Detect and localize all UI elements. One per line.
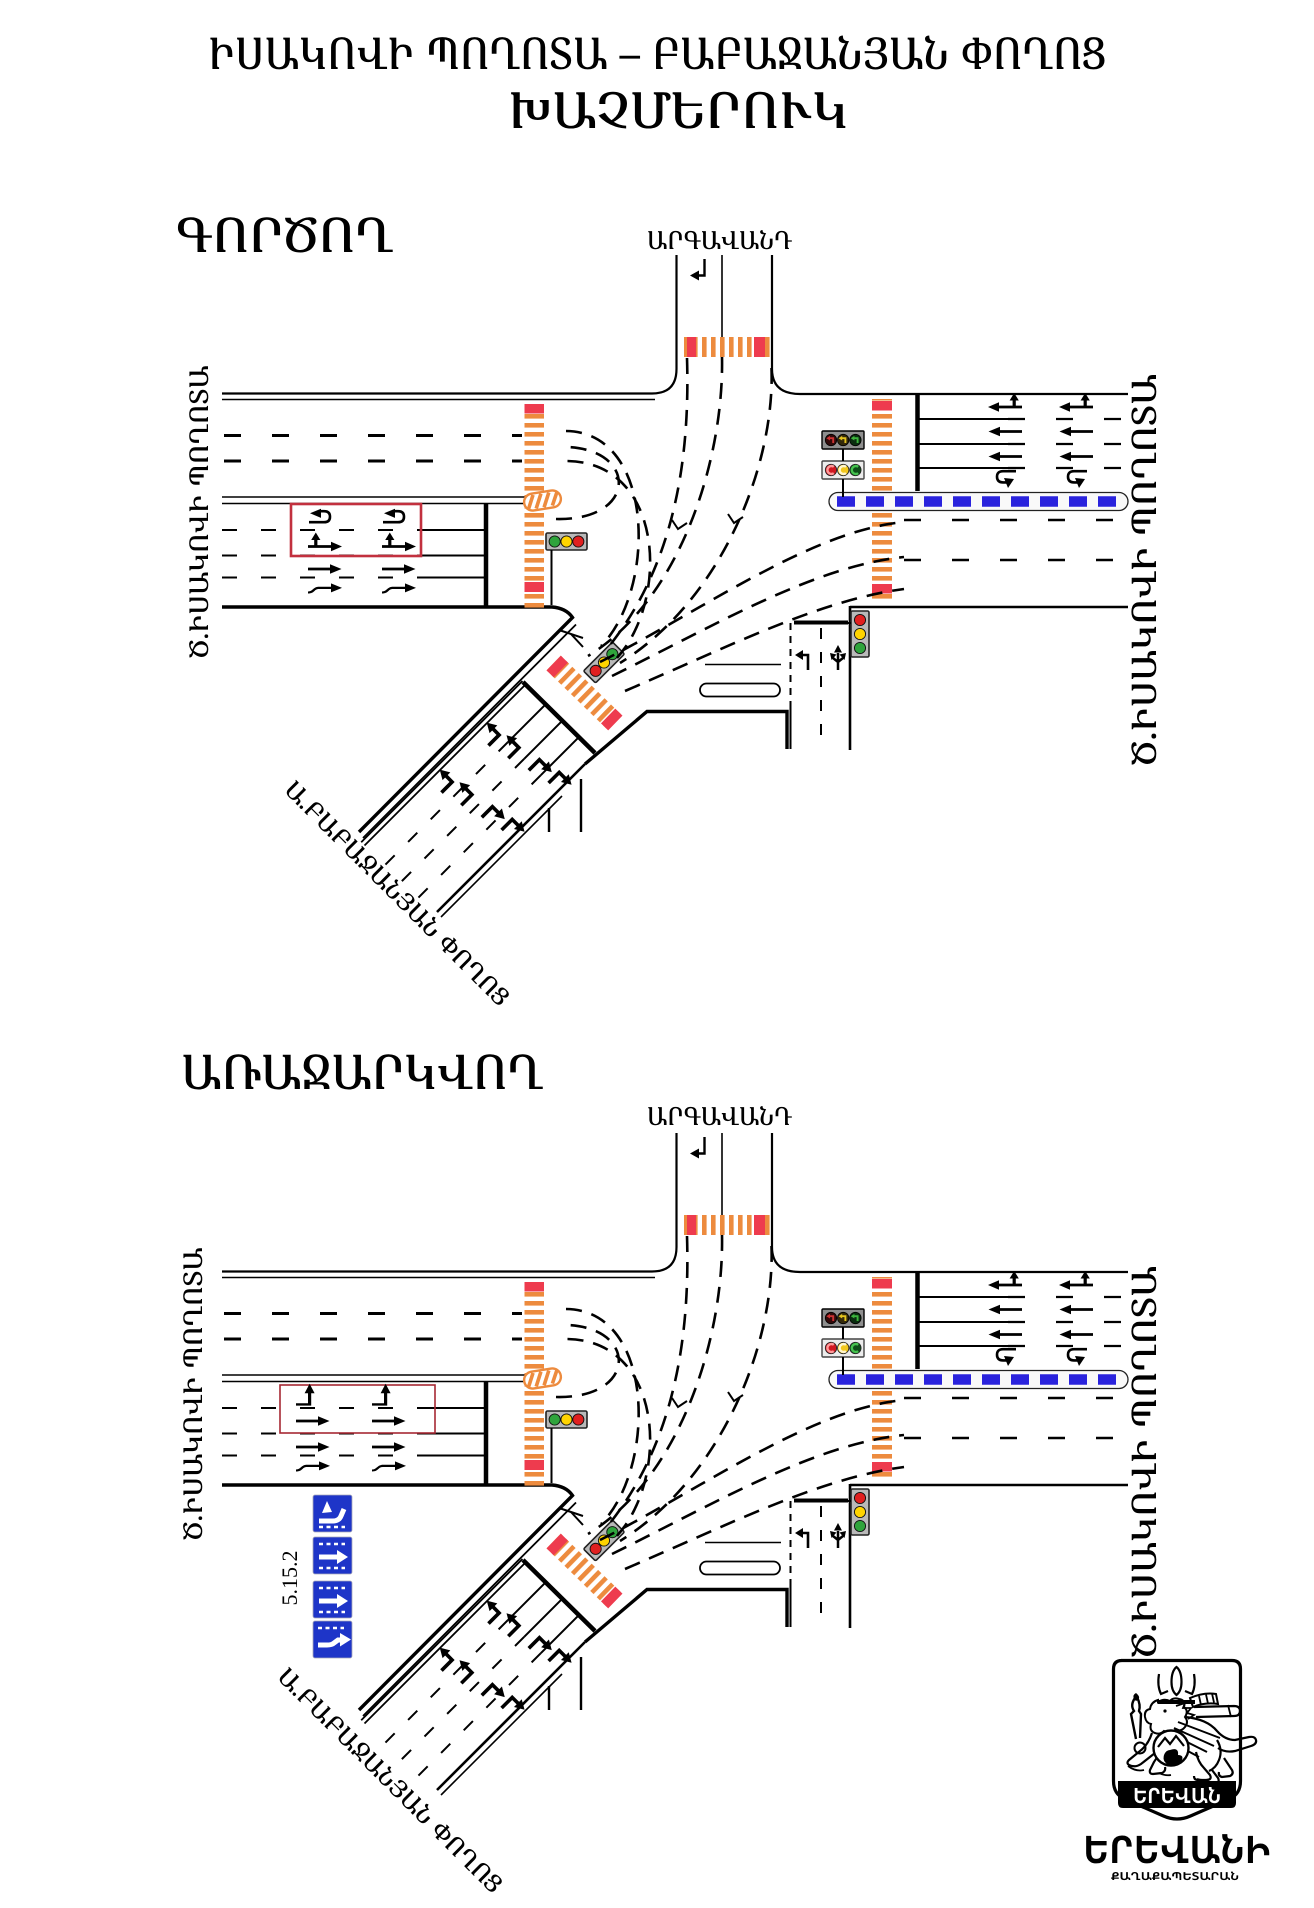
svg-text:5.15.2: 5.15.2 [277,1551,302,1606]
